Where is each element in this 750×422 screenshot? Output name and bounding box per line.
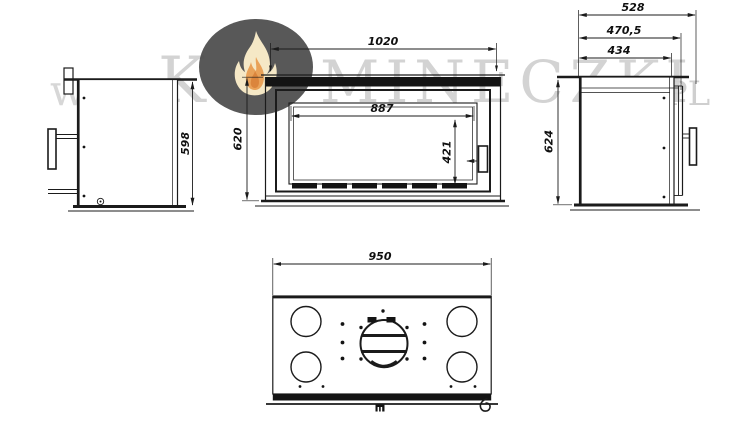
dim-depth-total: 528 — [622, 1, 645, 14]
door-handle-lever — [48, 129, 56, 169]
dim-right-height: 624 — [543, 130, 556, 153]
front-edge-band — [273, 394, 491, 401]
door-handle-lever — [690, 128, 697, 165]
right-side-view: 528 470,5 434 624 — [543, 1, 701, 210]
body-outline — [78, 80, 178, 207]
top-plate-band — [266, 77, 501, 87]
dim-front-width: 1020 — [368, 35, 399, 48]
dim-depth-body: 434 — [607, 44, 631, 57]
dim-left-height: 598 — [179, 132, 192, 155]
front-view: 1020 887 421 — [232, 35, 510, 206]
fireplace-dimension-drawing: 598 1020 887 421 — [0, 0, 750, 422]
top-view: 950 — [266, 250, 498, 412]
back-flange — [64, 68, 73, 94]
latch-tab — [376, 405, 385, 412]
dim-glass-height: 421 — [441, 141, 454, 165]
dim-top-width: 950 — [369, 250, 392, 263]
left-side-view: 598 — [48, 68, 197, 211]
door-lock — [479, 146, 488, 172]
dim-glass-width: 887 — [371, 102, 394, 115]
body-outline — [580, 77, 675, 205]
dim-front-height: 620 — [232, 127, 245, 150]
technical-drawing-page: www. K MINECZKI .PL — [0, 0, 750, 422]
dim-depth-with-door: 470,5 — [606, 24, 642, 37]
